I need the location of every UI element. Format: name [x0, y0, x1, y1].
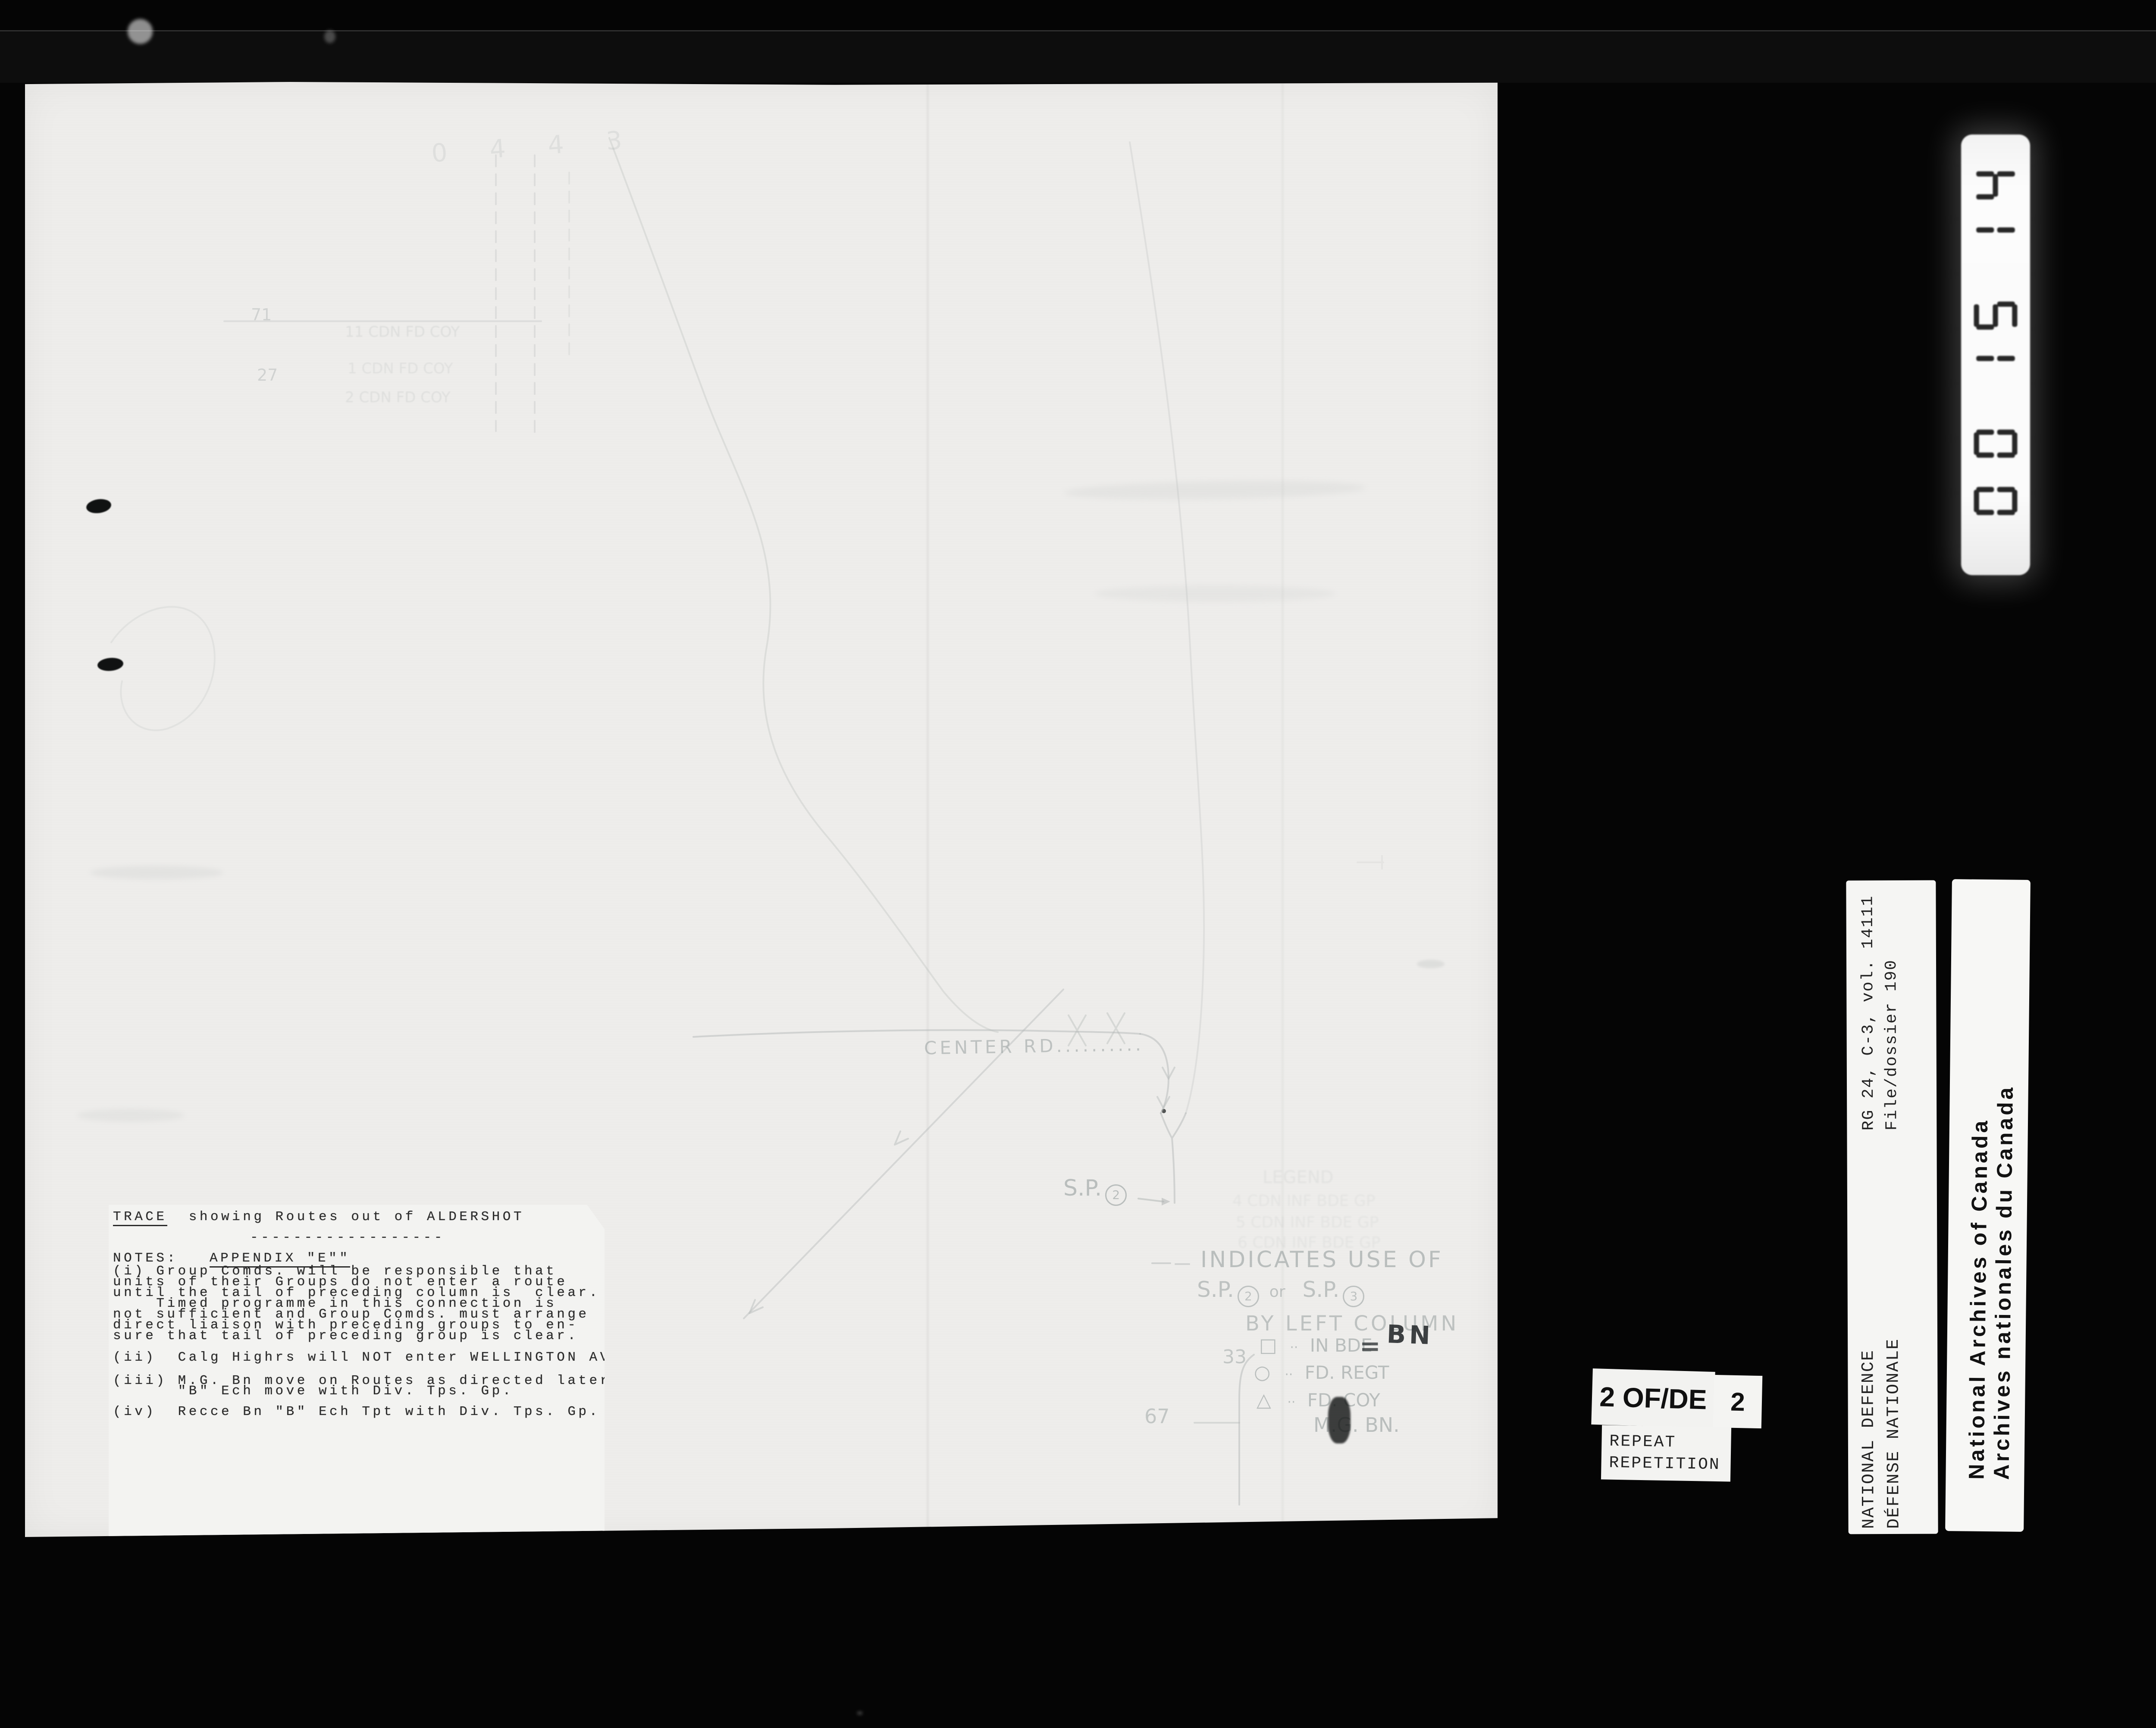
department-label: NATIONAL DEFENCE DÉFENSE NATIONALE [1856, 1338, 1907, 1529]
legend-item-regt: ○ ·· FD. REGT [1254, 1362, 1389, 1384]
record-group-label: RG 24, C-3, vol. 14111 File/dossier 190 [1856, 895, 1904, 1130]
film-dust-speck [324, 30, 335, 43]
legend-item-bde: □ ·· IN BDE [1259, 1334, 1373, 1356]
legend-sp-line: S.P.2 or S.P.3 [1197, 1277, 1368, 1307]
trace-title-word: TRACE [113, 1209, 167, 1226]
counter-digit [1971, 427, 2020, 460]
counter-digit [1971, 299, 2020, 332]
divider-dashes: ------------------ [250, 1230, 445, 1245]
circle-symbol-icon: ○ [1254, 1362, 1279, 1384]
trace-document: 0 4 4 3 71 27 11 CDN FD COY 1 CDN FD COY… [25, 82, 1498, 1537]
note-iii-line: "B" Ech move with Div. Tps. Gp. [113, 1384, 514, 1399]
counter-digit [1971, 354, 2020, 386]
department-line-fr: DÉFENSE NATIONALE [1881, 1338, 1907, 1529]
legend-sp2: S.P. [1303, 1277, 1340, 1302]
square-symbol-icon: □ [1259, 1334, 1284, 1356]
note-iv-line: (iv) Recce Bn "B" Ech Tpt with Div. Tps.… [113, 1404, 600, 1419]
film-dust-speck [857, 1712, 862, 1715]
handwritten-marks: 0 4 4 3 [430, 124, 640, 168]
page-number-slip: 2 OF/DE [1591, 1368, 1715, 1428]
legend-dots: ·· [1287, 1395, 1295, 1410]
faint-row: 4 CDN INF BDE GP [1232, 1192, 1376, 1210]
legend-item-mg-bn: M.G. BN. [1313, 1413, 1400, 1437]
trace-title: TRACE showing Routes out of ALDERSHOT [113, 1209, 524, 1224]
counter-digit [1971, 169, 2020, 202]
faint-pencil-smudge [1094, 585, 1336, 602]
overwritten-bn-label: BN [1386, 1319, 1434, 1350]
page-total-label: 2 [1730, 1387, 1745, 1417]
legend-heading: INDICATES USE OF [1200, 1247, 1443, 1273]
unit-name-row: 1 CDN FD COY [348, 360, 453, 377]
faint-pencil-smudge [90, 866, 223, 880]
ink-dot [85, 498, 112, 515]
repeat-label-fr: REPETITION [1609, 1453, 1720, 1476]
legend-sp1: S.P. [1197, 1277, 1234, 1302]
note-i-line: sure that tail of preceding group is cle… [113, 1328, 578, 1343]
road-label: CENTER RD.......... [924, 1034, 1144, 1059]
microfilm-frame: 0 4 4 3 71 27 11 CDN FD COY 1 CDN FD COY… [0, 0, 2156, 1728]
grid-number-71: 71 [251, 305, 272, 324]
faint-row: LEGEND [1263, 1168, 1334, 1187]
file-dossier-line: File/dossier 190 [1880, 895, 1904, 1130]
circled-3-icon: 3 [1343, 1286, 1364, 1307]
legend-item-label: FD. REGT [1305, 1362, 1389, 1383]
grid-number-27: 27 [257, 366, 278, 385]
page-total-slip: 2 [1713, 1375, 1763, 1428]
triangle-symbol-icon: △ [1257, 1389, 1282, 1411]
ink-speck [1162, 1109, 1166, 1113]
film-edge-band [0, 32, 2156, 83]
national-archives-strip: National Archives of Canada Archives nat… [1945, 879, 2031, 1532]
faint-row: 5 CDN INF BDE GP [1236, 1214, 1379, 1231]
repeat-label-en: REPEAT [1609, 1431, 1721, 1454]
archives-line-fr: Archives nationales du Canada [1989, 1085, 2018, 1480]
ink-dot [97, 657, 124, 672]
trace-title-rest: showing Routes out of ALDERSHOT [167, 1209, 524, 1224]
faint-pencil-smudge [1417, 960, 1445, 968]
circled-2-icon: 2 [1238, 1286, 1259, 1307]
frame-counter-strip [1961, 135, 2030, 575]
note-ii-line: (ii) Calg Highrs will NOT enter WELLINGT… [113, 1350, 633, 1365]
overwritten-equals-mark: = [1360, 1331, 1381, 1361]
national-archives-label: National Archives of Canada Archives nat… [1964, 1085, 2018, 1480]
counter-digit [1971, 485, 2020, 517]
archives-line-en: National Archives of Canada [1964, 1085, 1993, 1480]
legend-dots: ·· [1290, 1340, 1298, 1355]
faint-pencil-smudge [1064, 479, 1366, 502]
record-group-line: RG 24, C-3, vol. 14111 [1856, 895, 1880, 1130]
legend-item-coy: △ ·· FD. COY [1257, 1389, 1380, 1411]
paper-crease [927, 82, 928, 1537]
department-line-en: NATIONAL DEFENCE [1856, 1338, 1882, 1529]
repeat-stamp-slip: REPEAT REPETITION [1601, 1425, 1731, 1481]
grid-number-67: 67 [1144, 1405, 1170, 1428]
grid-number-33: 33 [1222, 1346, 1247, 1368]
archive-reference-strip: RG 24, C-3, vol. 14111 File/dossier 190 … [1846, 880, 1938, 1534]
sp-text: S.P. [1063, 1175, 1102, 1201]
counter-digit [1971, 225, 2020, 258]
unit-name-row: 11 CDN FD COY [345, 323, 460, 341]
unit-name-row: 2 CDN FD COY [345, 389, 451, 406]
start-point-label: S.P.2 [1063, 1175, 1130, 1206]
circled-2-icon: 2 [1105, 1184, 1127, 1206]
page-of-label: 2 OF/DE [1599, 1381, 1708, 1416]
legend-dots: ·· [1285, 1367, 1293, 1382]
faint-pencil-smudge [77, 1109, 185, 1122]
film-scratch-line [0, 30, 2156, 31]
film-dust-blotch [128, 19, 153, 44]
notes-paper: TRACE showing Routes out of ALDERSHOT --… [109, 1205, 605, 1550]
ink-blot [1328, 1397, 1351, 1443]
legend-or: or [1269, 1283, 1285, 1301]
